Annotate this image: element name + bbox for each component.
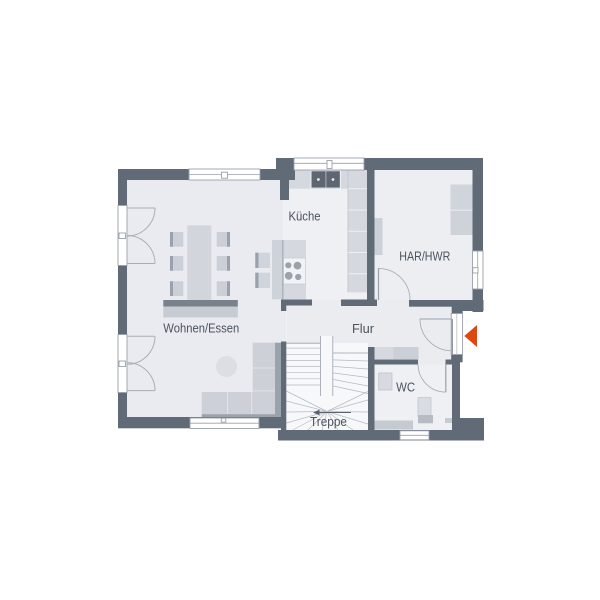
svg-text:Wohnen/Essen: Wohnen/Essen xyxy=(163,321,239,336)
svg-text:Treppe: Treppe xyxy=(310,415,347,429)
svg-text:WC: WC xyxy=(396,381,415,395)
svg-text:Küche: Küche xyxy=(289,209,321,224)
svg-text:HAR/HWR: HAR/HWR xyxy=(399,250,450,264)
svg-text:Flur: Flur xyxy=(352,321,375,336)
